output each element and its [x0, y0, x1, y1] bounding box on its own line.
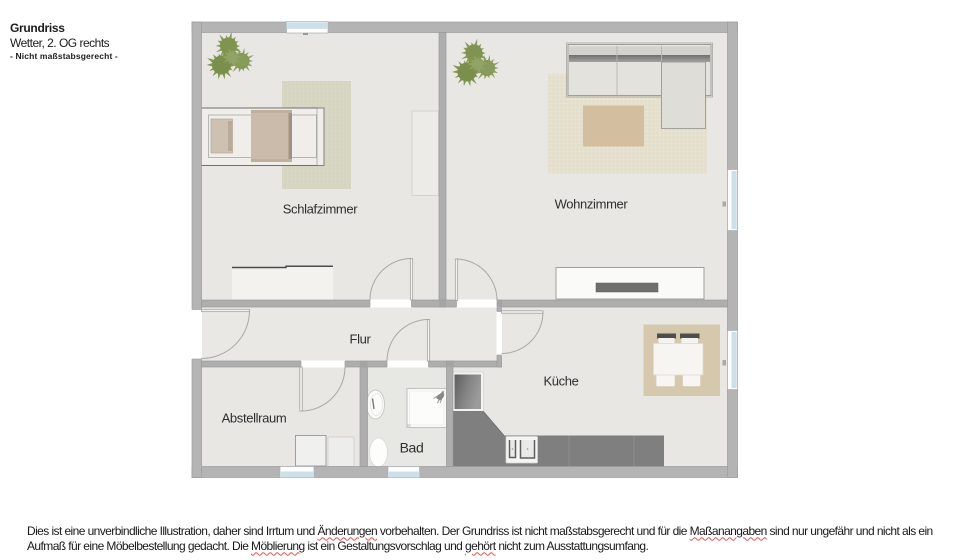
- svg-text:Flur: Flur: [350, 332, 372, 347]
- svg-text:Wohnzimmer: Wohnzimmer: [555, 197, 629, 212]
- svg-text:Küche: Küche: [543, 374, 578, 389]
- svg-text:Abstellraum: Abstellraum: [222, 411, 287, 426]
- svg-text:Schlafzimmer: Schlafzimmer: [283, 202, 359, 217]
- svg-text:Bad: Bad: [400, 440, 424, 456]
